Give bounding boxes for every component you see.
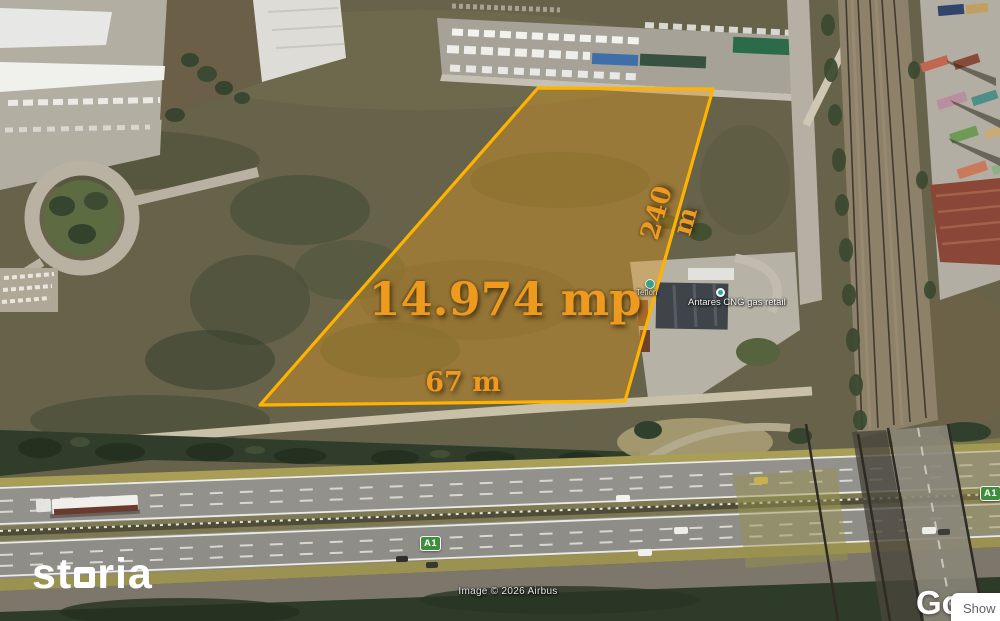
plot-frontage-label: 67 m bbox=[413, 367, 513, 398]
storia-watermark-logo: stria bbox=[32, 553, 153, 596]
storia-logo-suffix: ria bbox=[97, 550, 153, 598]
imagery-attribution: Image © 2026 Airbus bbox=[438, 586, 578, 597]
gas-station-marker-icon[interactable] bbox=[716, 288, 725, 297]
show-tooltip-button[interactable]: Show bbox=[951, 593, 1000, 621]
storia-logo-prefix: st bbox=[32, 550, 72, 598]
gas-station-label[interactable]: Antares CNG gas retail bbox=[688, 297, 808, 308]
a1-road-badge-right: A1 bbox=[980, 486, 1000, 501]
poi-small-label[interactable]: Teflon bbox=[636, 288, 696, 297]
gas-station-marker-dot bbox=[718, 290, 723, 295]
plot-area-label: 14.974 mp bbox=[360, 272, 650, 326]
storia-square-o-icon bbox=[74, 567, 95, 588]
listing-map-screenshot: 14.974 mp 240 m 67 m Teflon Antares CNG … bbox=[0, 0, 1000, 621]
a1-road-badge: A1 bbox=[420, 536, 441, 551]
